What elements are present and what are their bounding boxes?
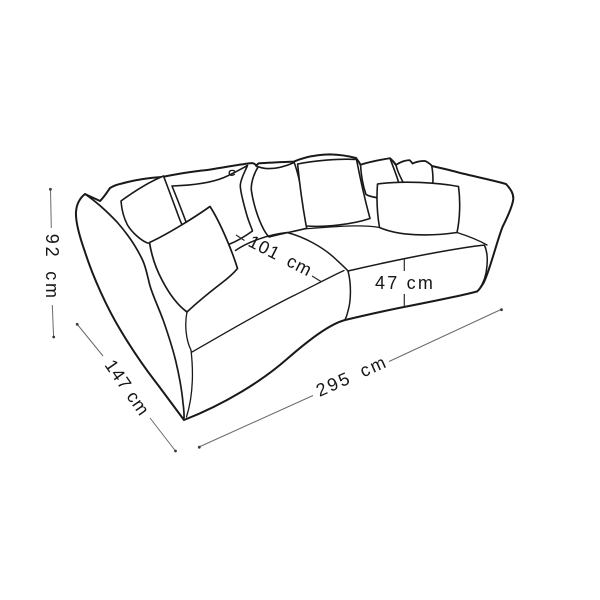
svg-text:47 cm: 47 cm xyxy=(375,273,435,293)
svg-text:295 cm: 295 cm xyxy=(313,351,391,400)
svg-text:92 cm: 92 cm xyxy=(42,234,62,301)
